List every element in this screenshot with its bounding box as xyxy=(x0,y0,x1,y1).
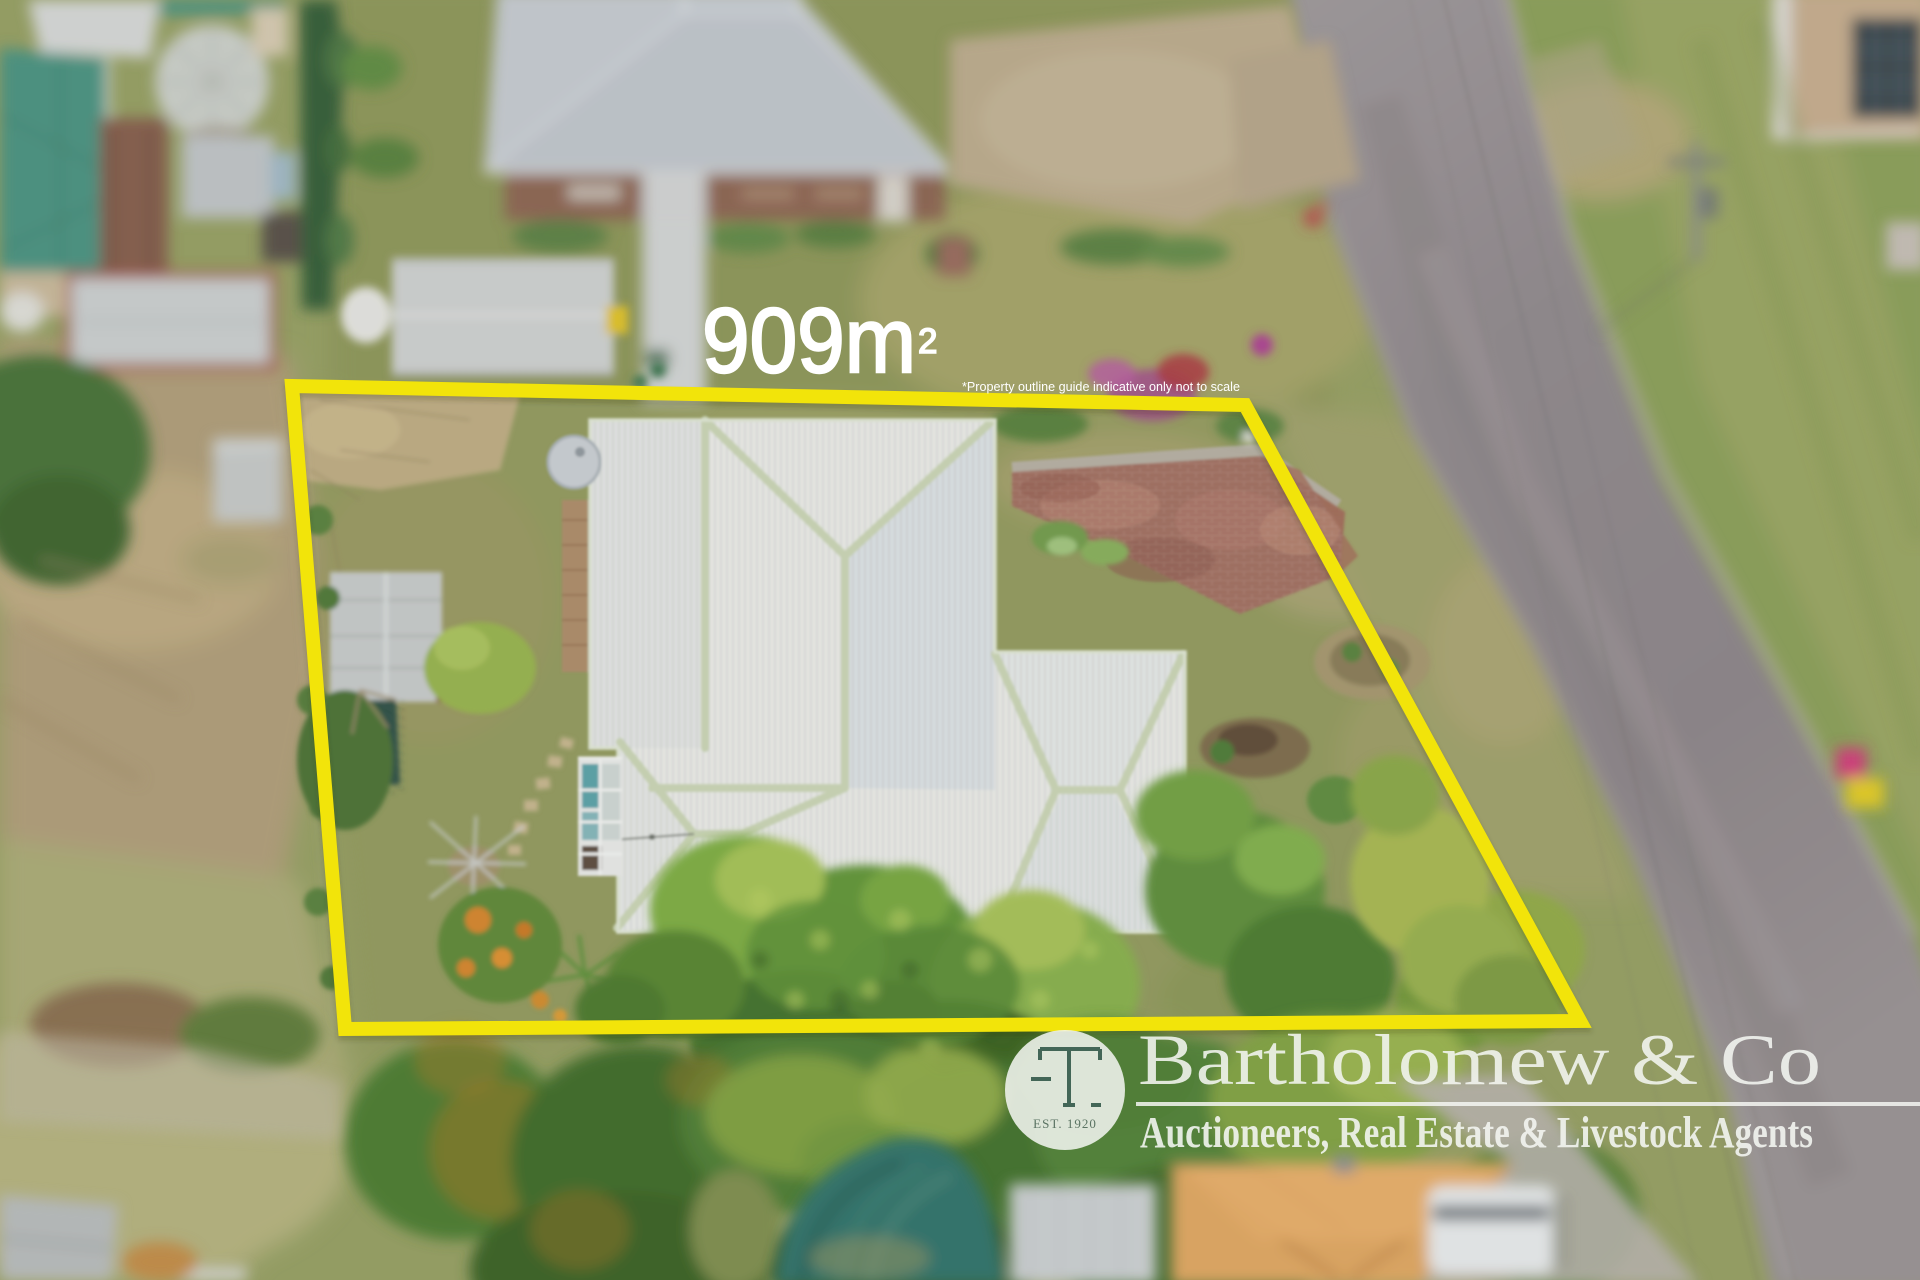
svg-text:Bartholomew & Co: Bartholomew & Co xyxy=(1138,1020,1821,1100)
svg-text:909m: 909m xyxy=(702,290,916,392)
svg-text:2: 2 xyxy=(918,322,937,361)
svg-text:Auctioneers, Real Estate & Liv: Auctioneers, Real Estate & Livestock Age… xyxy=(1140,1108,1813,1157)
svg-text:*Property outline guide indica: *Property outline guide indicative only … xyxy=(962,379,1240,394)
svg-text:EST. 1920: EST. 1920 xyxy=(1033,1116,1097,1131)
